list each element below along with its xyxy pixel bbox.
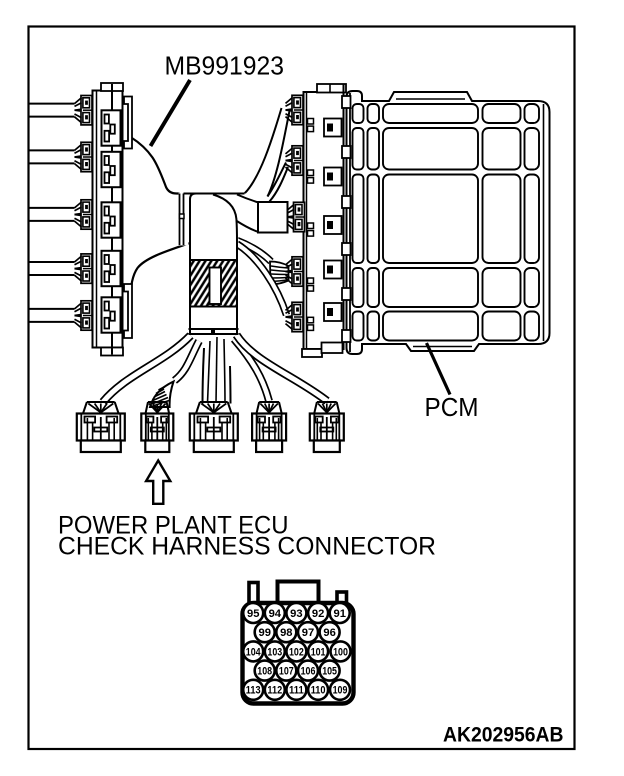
svg-text:100: 100 (333, 646, 348, 658)
svg-text:110: 110 (311, 685, 326, 697)
svg-text:101: 101 (311, 646, 326, 658)
svg-text:94: 94 (269, 608, 282, 620)
svg-text:93: 93 (290, 608, 302, 620)
svg-text:112: 112 (267, 685, 282, 697)
svg-text:MB991923: MB991923 (165, 51, 285, 81)
svg-text:95: 95 (247, 608, 259, 620)
svg-text:111: 111 (289, 685, 304, 697)
svg-text:109: 109 (333, 685, 348, 697)
svg-text:99: 99 (258, 627, 270, 639)
svg-text:105: 105 (322, 666, 337, 678)
svg-text:102: 102 (289, 646, 304, 658)
svg-text:PCM: PCM (425, 392, 479, 422)
svg-text:CHECK HARNESS CONNECTOR: CHECK HARNESS CONNECTOR (58, 533, 436, 561)
svg-text:98: 98 (280, 627, 292, 639)
svg-text:108: 108 (257, 666, 272, 678)
svg-text:106: 106 (301, 666, 316, 678)
svg-text:104: 104 (246, 646, 261, 658)
svg-text:107: 107 (279, 666, 294, 678)
svg-text:96: 96 (323, 627, 335, 639)
svg-text:AK202956AB: AK202956AB (443, 723, 564, 747)
svg-text:91: 91 (333, 608, 345, 620)
svg-text:92: 92 (312, 608, 324, 620)
svg-text:113: 113 (246, 685, 261, 697)
svg-text:103: 103 (267, 646, 282, 658)
svg-text:97: 97 (302, 627, 314, 639)
